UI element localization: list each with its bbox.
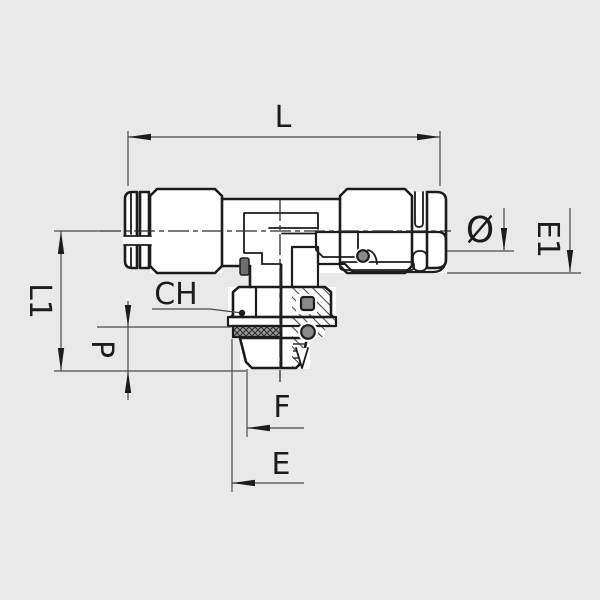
dimension-F: F [247,369,304,437]
arrowhead [417,134,440,140]
arrowhead [567,250,573,273]
dim-label-CH: CH [154,277,198,312]
arrowhead [58,348,64,371]
dim-label-F: F [273,390,290,425]
arrowhead [501,228,507,251]
drawing-canvas: L L1 P CH Ø [0,0,600,600]
fitting-technical-drawing: L L1 P CH Ø [0,0,600,600]
dim-label-E1: E1 [530,220,565,258]
dim-label-L: L [275,100,292,135]
dimension-P: P [84,301,231,400]
leader-dot [239,310,245,316]
arrowhead [128,134,151,140]
swivel-ring [240,258,249,275]
tube-oring [357,250,369,262]
dim-label-E: E [272,447,291,482]
stud-oring [301,325,315,339]
washer [233,326,281,337]
dim-label-P: P [84,340,119,358]
arrowhead [58,231,64,254]
dim-label-diameter: Ø [466,210,494,251]
thread-seal-section [301,297,314,310]
arrowhead [125,371,131,393]
arrowhead [247,425,270,431]
dim-label-L1: L1 [22,283,57,319]
dimension-L: L [128,100,440,186]
dimension-diameter: Ø [447,208,514,251]
arrowhead [232,480,255,486]
arrowhead [125,305,131,327]
